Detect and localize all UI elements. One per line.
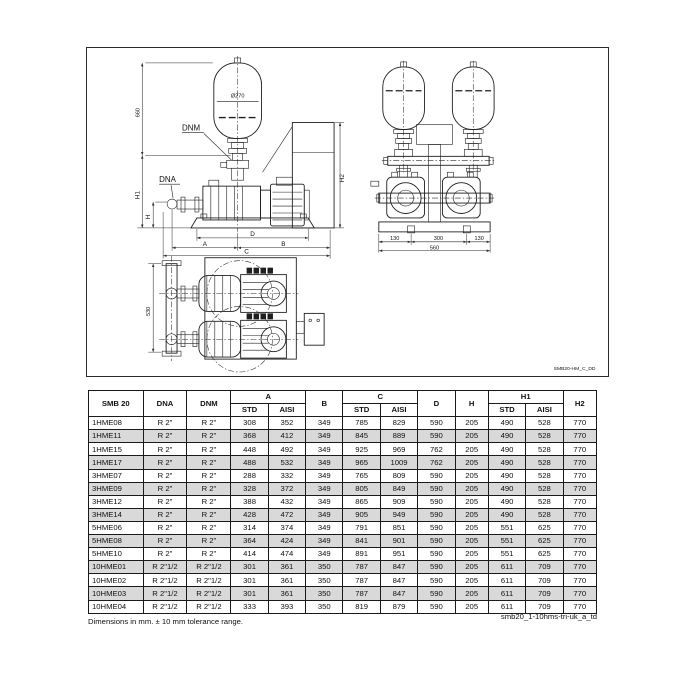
value-cell: 765 <box>343 469 380 482</box>
side-view: Ø270 <box>134 56 346 259</box>
value-cell: 625 <box>526 548 563 561</box>
value-cell: 532 <box>268 456 305 469</box>
value-cell: R 2" <box>143 508 187 521</box>
value-cell: R 2" <box>143 521 187 534</box>
value-cell: 490 <box>488 508 525 521</box>
col-c-std: STD <box>343 404 380 417</box>
dimension-table: SMB 20 DNA DNM A B C D H H1 H2 STD AISI … <box>88 390 597 614</box>
value-cell: 770 <box>563 521 596 534</box>
table-row: 3HME14R 2"R 2"42847234990594959020549052… <box>89 508 597 521</box>
value-cell: 528 <box>526 456 563 469</box>
baseplate-front <box>379 222 490 233</box>
value-cell: 819 <box>343 600 380 613</box>
value-cell: 349 <box>306 443 343 456</box>
value-cell: 361 <box>268 587 305 600</box>
value-cell: 770 <box>563 587 596 600</box>
value-cell: 205 <box>455 456 488 469</box>
value-cell: 805 <box>343 482 380 495</box>
value-cell: 349 <box>306 482 343 495</box>
col-h2: H2 <box>563 391 596 417</box>
value-cell: 350 <box>306 587 343 600</box>
value-cell: 925 <box>343 443 380 456</box>
model-cell: 5HME10 <box>89 548 144 561</box>
value-cell: R 2" <box>187 430 231 443</box>
value-cell: 909 <box>380 495 417 508</box>
value-cell: 709 <box>526 574 563 587</box>
plan-depth-label: 530 <box>146 307 152 316</box>
value-cell: 590 <box>418 495 455 508</box>
value-cell: 205 <box>455 561 488 574</box>
col-h1: H1 <box>488 391 563 404</box>
value-cell: 349 <box>306 417 343 430</box>
value-cell: 528 <box>526 469 563 482</box>
value-cell: 709 <box>526 561 563 574</box>
front-dim-right-label: 130 <box>475 236 484 242</box>
value-cell: 770 <box>563 430 596 443</box>
col-c-aisi: AISI <box>380 404 417 417</box>
value-cell: 490 <box>488 495 525 508</box>
value-cell: 205 <box>455 417 488 430</box>
value-cell: 349 <box>306 548 343 561</box>
value-cell: 490 <box>488 469 525 482</box>
front-view: 130 300 130 560 <box>371 61 495 253</box>
value-cell: 841 <box>343 535 380 548</box>
value-cell: 528 <box>526 482 563 495</box>
value-cell: 528 <box>526 495 563 508</box>
tolerance-note: Dimensions in mm. ± 10 mm tolerance rang… <box>88 617 243 626</box>
value-cell: 770 <box>563 443 596 456</box>
col-h1-aisi: AISI <box>526 404 563 417</box>
value-cell: 368 <box>231 430 268 443</box>
pump-plan-1 <box>159 268 298 313</box>
col-a-std: STD <box>231 404 268 417</box>
value-cell: 809 <box>380 469 417 482</box>
value-cell: 301 <box>231 561 268 574</box>
value-cell: 879 <box>380 600 417 613</box>
value-cell: 590 <box>418 574 455 587</box>
value-cell: 352 <box>268 417 305 430</box>
model-cell: 10HME03 <box>89 587 144 600</box>
value-cell: 551 <box>488 521 525 534</box>
value-cell: R 2" <box>187 469 231 482</box>
value-cell: 288 <box>231 469 268 482</box>
value-cell: R 2"1/2 <box>143 561 187 574</box>
col-h1-std: STD <box>488 404 525 417</box>
value-cell: 829 <box>380 417 417 430</box>
model-cell: 1HME17 <box>89 456 144 469</box>
value-cell: 205 <box>455 587 488 600</box>
value-cell: 969 <box>380 443 417 456</box>
table-row: 10HME03R 2"1/2R 2"1/23013613507878475902… <box>89 587 597 600</box>
model-cell: 1HME11 <box>89 430 144 443</box>
value-cell: 762 <box>418 456 455 469</box>
value-cell: 205 <box>455 535 488 548</box>
value-cell: R 2" <box>143 430 187 443</box>
value-cell: 490 <box>488 456 525 469</box>
value-cell: 528 <box>526 430 563 443</box>
value-cell: 301 <box>231 587 268 600</box>
value-cell: 205 <box>455 600 488 613</box>
value-cell: 361 <box>268 574 305 587</box>
value-cell: 472 <box>268 508 305 521</box>
value-cell: 889 <box>380 430 417 443</box>
model-cell: 10HME01 <box>89 561 144 574</box>
value-cell: 361 <box>268 561 305 574</box>
value-cell: 590 <box>418 561 455 574</box>
value-cell: 965 <box>343 456 380 469</box>
value-cell: 590 <box>418 469 455 482</box>
value-cell: 414 <box>231 548 268 561</box>
table-header: SMB 20 DNA DNM A B C D H H1 H2 STD AISI … <box>89 391 597 417</box>
front-dim-left-label: 130 <box>390 236 399 242</box>
table-row: 1HME08R 2"R 2"30835234978582959020549052… <box>89 417 597 430</box>
model-cell: 3HME12 <box>89 495 144 508</box>
value-cell: 847 <box>380 587 417 600</box>
value-cell: R 2"1/2 <box>143 587 187 600</box>
value-cell: R 2" <box>143 548 187 561</box>
dim-h1-label: H1 <box>134 191 141 200</box>
value-cell: R 2" <box>143 482 187 495</box>
value-cell: 901 <box>380 535 417 548</box>
value-cell: 328 <box>231 482 268 495</box>
value-cell: 350 <box>306 600 343 613</box>
value-cell: 611 <box>488 587 525 600</box>
col-h: H <box>455 391 488 417</box>
col-c: C <box>343 391 418 404</box>
table-row: 1HME15R 2"R 2"44849234992596976220549052… <box>89 443 597 456</box>
value-cell: 949 <box>380 508 417 521</box>
value-cell: 528 <box>526 417 563 430</box>
col-a: A <box>231 391 306 404</box>
value-cell: 474 <box>268 548 305 561</box>
value-cell: 590 <box>418 508 455 521</box>
value-cell: 393 <box>268 600 305 613</box>
value-cell: 770 <box>563 548 596 561</box>
datasheet-page: Ø270 <box>0 0 700 700</box>
value-cell: 590 <box>418 482 455 495</box>
value-cell: 770 <box>563 469 596 482</box>
dim-a-label: A <box>203 241 208 248</box>
value-cell: 490 <box>488 417 525 430</box>
value-cell: R 2" <box>187 417 231 430</box>
value-cell: 488 <box>231 456 268 469</box>
value-cell: R 2"1/2 <box>187 600 231 613</box>
value-cell: 787 <box>343 587 380 600</box>
value-cell: 308 <box>231 417 268 430</box>
value-cell: 490 <box>488 443 525 456</box>
value-cell: 762 <box>418 443 455 456</box>
value-cell: 849 <box>380 482 417 495</box>
value-cell: 205 <box>455 443 488 456</box>
value-cell: 490 <box>488 430 525 443</box>
model-cell: 3HME09 <box>89 482 144 495</box>
value-cell: 770 <box>563 535 596 548</box>
value-cell: R 2" <box>143 443 187 456</box>
table-row: 5HME06R 2"R 2"31437434979185159020555162… <box>89 521 597 534</box>
value-cell: 314 <box>231 521 268 534</box>
value-cell: 551 <box>488 548 525 561</box>
model-cell: 10HME04 <box>89 600 144 613</box>
dim-c-label: C <box>244 249 249 256</box>
suction-manifold-plan <box>162 256 181 361</box>
value-cell: R 2" <box>143 417 187 430</box>
value-cell: R 2" <box>187 521 231 534</box>
value-cell: 551 <box>488 535 525 548</box>
value-cell: 845 <box>343 430 380 443</box>
value-cell: 851 <box>380 521 417 534</box>
value-cell: 785 <box>343 417 380 430</box>
drawing-id-label: SMB20-HM_C_DD <box>554 366 596 372</box>
value-cell: 590 <box>418 548 455 561</box>
value-cell: 372 <box>268 482 305 495</box>
value-cell: 301 <box>231 574 268 587</box>
value-cell: 205 <box>455 469 488 482</box>
value-cell: 905 <box>343 508 380 521</box>
value-cell: 590 <box>418 521 455 534</box>
model-cell: 1HME08 <box>89 417 144 430</box>
model-cell: 5HME08 <box>89 535 144 548</box>
value-cell: 349 <box>306 430 343 443</box>
value-cell: 388 <box>231 495 268 508</box>
value-cell: 611 <box>488 574 525 587</box>
value-cell: R 2" <box>143 495 187 508</box>
value-cell: R 2" <box>187 548 231 561</box>
value-cell: R 2"1/2 <box>187 561 231 574</box>
value-cell: 364 <box>231 535 268 548</box>
tank-fittings-front <box>394 130 483 157</box>
value-cell: 847 <box>380 574 417 587</box>
table-row: 3HME12R 2"R 2"38843234986590959020549052… <box>89 495 597 508</box>
value-cell: R 2" <box>187 508 231 521</box>
value-cell: R 2"1/2 <box>143 600 187 613</box>
front-dim-total-label: 560 <box>430 245 439 251</box>
value-cell: 770 <box>563 574 596 587</box>
table-row: 10HME02R 2"1/2R 2"1/23013613507878475902… <box>89 574 597 587</box>
model-cell: 10HME02 <box>89 574 144 587</box>
dim-b-label: B <box>281 241 285 248</box>
value-cell: 448 <box>231 443 268 456</box>
value-cell: 205 <box>455 521 488 534</box>
value-cell: 625 <box>526 521 563 534</box>
col-model: SMB 20 <box>89 391 144 417</box>
value-cell: 205 <box>455 430 488 443</box>
dim-h2-label: H2 <box>339 174 346 183</box>
value-cell: 770 <box>563 482 596 495</box>
value-cell: 349 <box>306 456 343 469</box>
value-cell: 432 <box>268 495 305 508</box>
value-cell: 349 <box>306 508 343 521</box>
value-cell: 349 <box>306 495 343 508</box>
value-cell: 787 <box>343 561 380 574</box>
value-cell: R 2" <box>187 456 231 469</box>
value-cell: R 2" <box>187 443 231 456</box>
value-cell: 590 <box>418 535 455 548</box>
value-cell: 528 <box>526 443 563 456</box>
value-cell: 611 <box>488 561 525 574</box>
value-cell: 709 <box>526 587 563 600</box>
value-cell: 865 <box>343 495 380 508</box>
pump-front-2 <box>442 172 480 218</box>
value-cell: 205 <box>455 574 488 587</box>
table-row: 3HME09R 2"R 2"32837234980584959020549052… <box>89 482 597 495</box>
dimension-table-wrap: SMB 20 DNA DNM A B C D H H1 H2 STD AISI … <box>88 390 597 614</box>
table-row: 3HME07R 2"R 2"28833234976580959020549052… <box>89 469 597 482</box>
col-d: D <box>418 391 455 417</box>
value-cell: 332 <box>268 469 305 482</box>
value-cell: 333 <box>231 600 268 613</box>
value-cell: 625 <box>526 535 563 548</box>
dimension-table-body: 1HME08R 2"R 2"30835234978582959020549052… <box>89 417 597 613</box>
document-reference: smb20_1-10hms-tri-uk_a_td <box>501 612 597 621</box>
value-cell: 205 <box>455 482 488 495</box>
value-cell: 951 <box>380 548 417 561</box>
value-cell: 428 <box>231 508 268 521</box>
value-cell: 590 <box>418 587 455 600</box>
value-cell: 891 <box>343 548 380 561</box>
pump-side <box>167 177 309 226</box>
value-cell: 770 <box>563 508 596 521</box>
value-cell: 847 <box>380 561 417 574</box>
technical-drawing: Ø270 <box>87 48 608 376</box>
tank-diameter-label: Ø270 <box>231 94 245 100</box>
value-cell: 490 <box>488 482 525 495</box>
value-cell: 424 <box>268 535 305 548</box>
value-cell: 205 <box>455 508 488 521</box>
table-row: 1HME17R 2"R 2"48853234996510097622054905… <box>89 456 597 469</box>
value-cell: R 2" <box>187 482 231 495</box>
value-cell: R 2"1/2 <box>143 574 187 587</box>
value-cell: 590 <box>418 600 455 613</box>
value-cell: 205 <box>455 548 488 561</box>
table-row: 1HME11R 2"R 2"36841234984588959020549052… <box>89 430 597 443</box>
technical-drawing-frame: Ø270 <box>86 47 609 377</box>
table-row: 10HME01R 2"1/2R 2"1/23013613507878475902… <box>89 561 597 574</box>
value-cell: 770 <box>563 561 596 574</box>
value-cell: 374 <box>268 521 305 534</box>
value-cell: R 2"1/2 <box>187 587 231 600</box>
model-cell: 3HME07 <box>89 469 144 482</box>
value-cell: R 2" <box>143 535 187 548</box>
value-cell: 492 <box>268 443 305 456</box>
value-cell: 770 <box>563 456 596 469</box>
value-cell: 349 <box>306 535 343 548</box>
value-cell: 205 <box>455 495 488 508</box>
dna-label: DNA <box>159 175 176 184</box>
control-panel-side <box>263 123 335 228</box>
discharge-fittings <box>221 138 249 180</box>
table-row: 5HME10R 2"R 2"41447434989195159020555162… <box>89 548 597 561</box>
value-cell: 350 <box>306 574 343 587</box>
col-dna: DNA <box>143 391 187 417</box>
value-cell: 412 <box>268 430 305 443</box>
dim-660-label: 660 <box>135 108 141 117</box>
value-cell: 350 <box>306 561 343 574</box>
discharge-manifold-front <box>382 156 495 165</box>
value-cell: 590 <box>418 430 455 443</box>
value-cell: 349 <box>306 469 343 482</box>
dim-d-label: D <box>250 231 255 238</box>
value-cell: 349 <box>306 521 343 534</box>
control-panel-plan <box>296 313 324 345</box>
value-cell: R 2"1/2 <box>187 574 231 587</box>
table-row: 5HME08R 2"R 2"36442434984190159020555162… <box>89 535 597 548</box>
front-dim-mid-label: 300 <box>434 236 443 242</box>
col-a-aisi: AISI <box>268 404 305 417</box>
value-cell: 770 <box>563 417 596 430</box>
model-cell: 3HME14 <box>89 508 144 521</box>
col-b: B <box>306 391 343 417</box>
value-cell: 590 <box>418 417 455 430</box>
value-cell: 787 <box>343 574 380 587</box>
value-cell: 770 <box>563 495 596 508</box>
value-cell: 1009 <box>380 456 417 469</box>
value-cell: R 2" <box>187 495 231 508</box>
value-cell: R 2" <box>187 535 231 548</box>
dim-h-label: H <box>145 214 152 219</box>
value-cell: R 2" <box>143 469 187 482</box>
col-dnm: DNM <box>187 391 231 417</box>
plan-view: 530 <box>146 256 324 372</box>
model-cell: 5HME06 <box>89 521 144 534</box>
model-cell: 1HME15 <box>89 443 144 456</box>
value-cell: 791 <box>343 521 380 534</box>
value-cell: 528 <box>526 508 563 521</box>
value-cell: R 2" <box>143 456 187 469</box>
dnm-label: DNM <box>182 123 200 132</box>
